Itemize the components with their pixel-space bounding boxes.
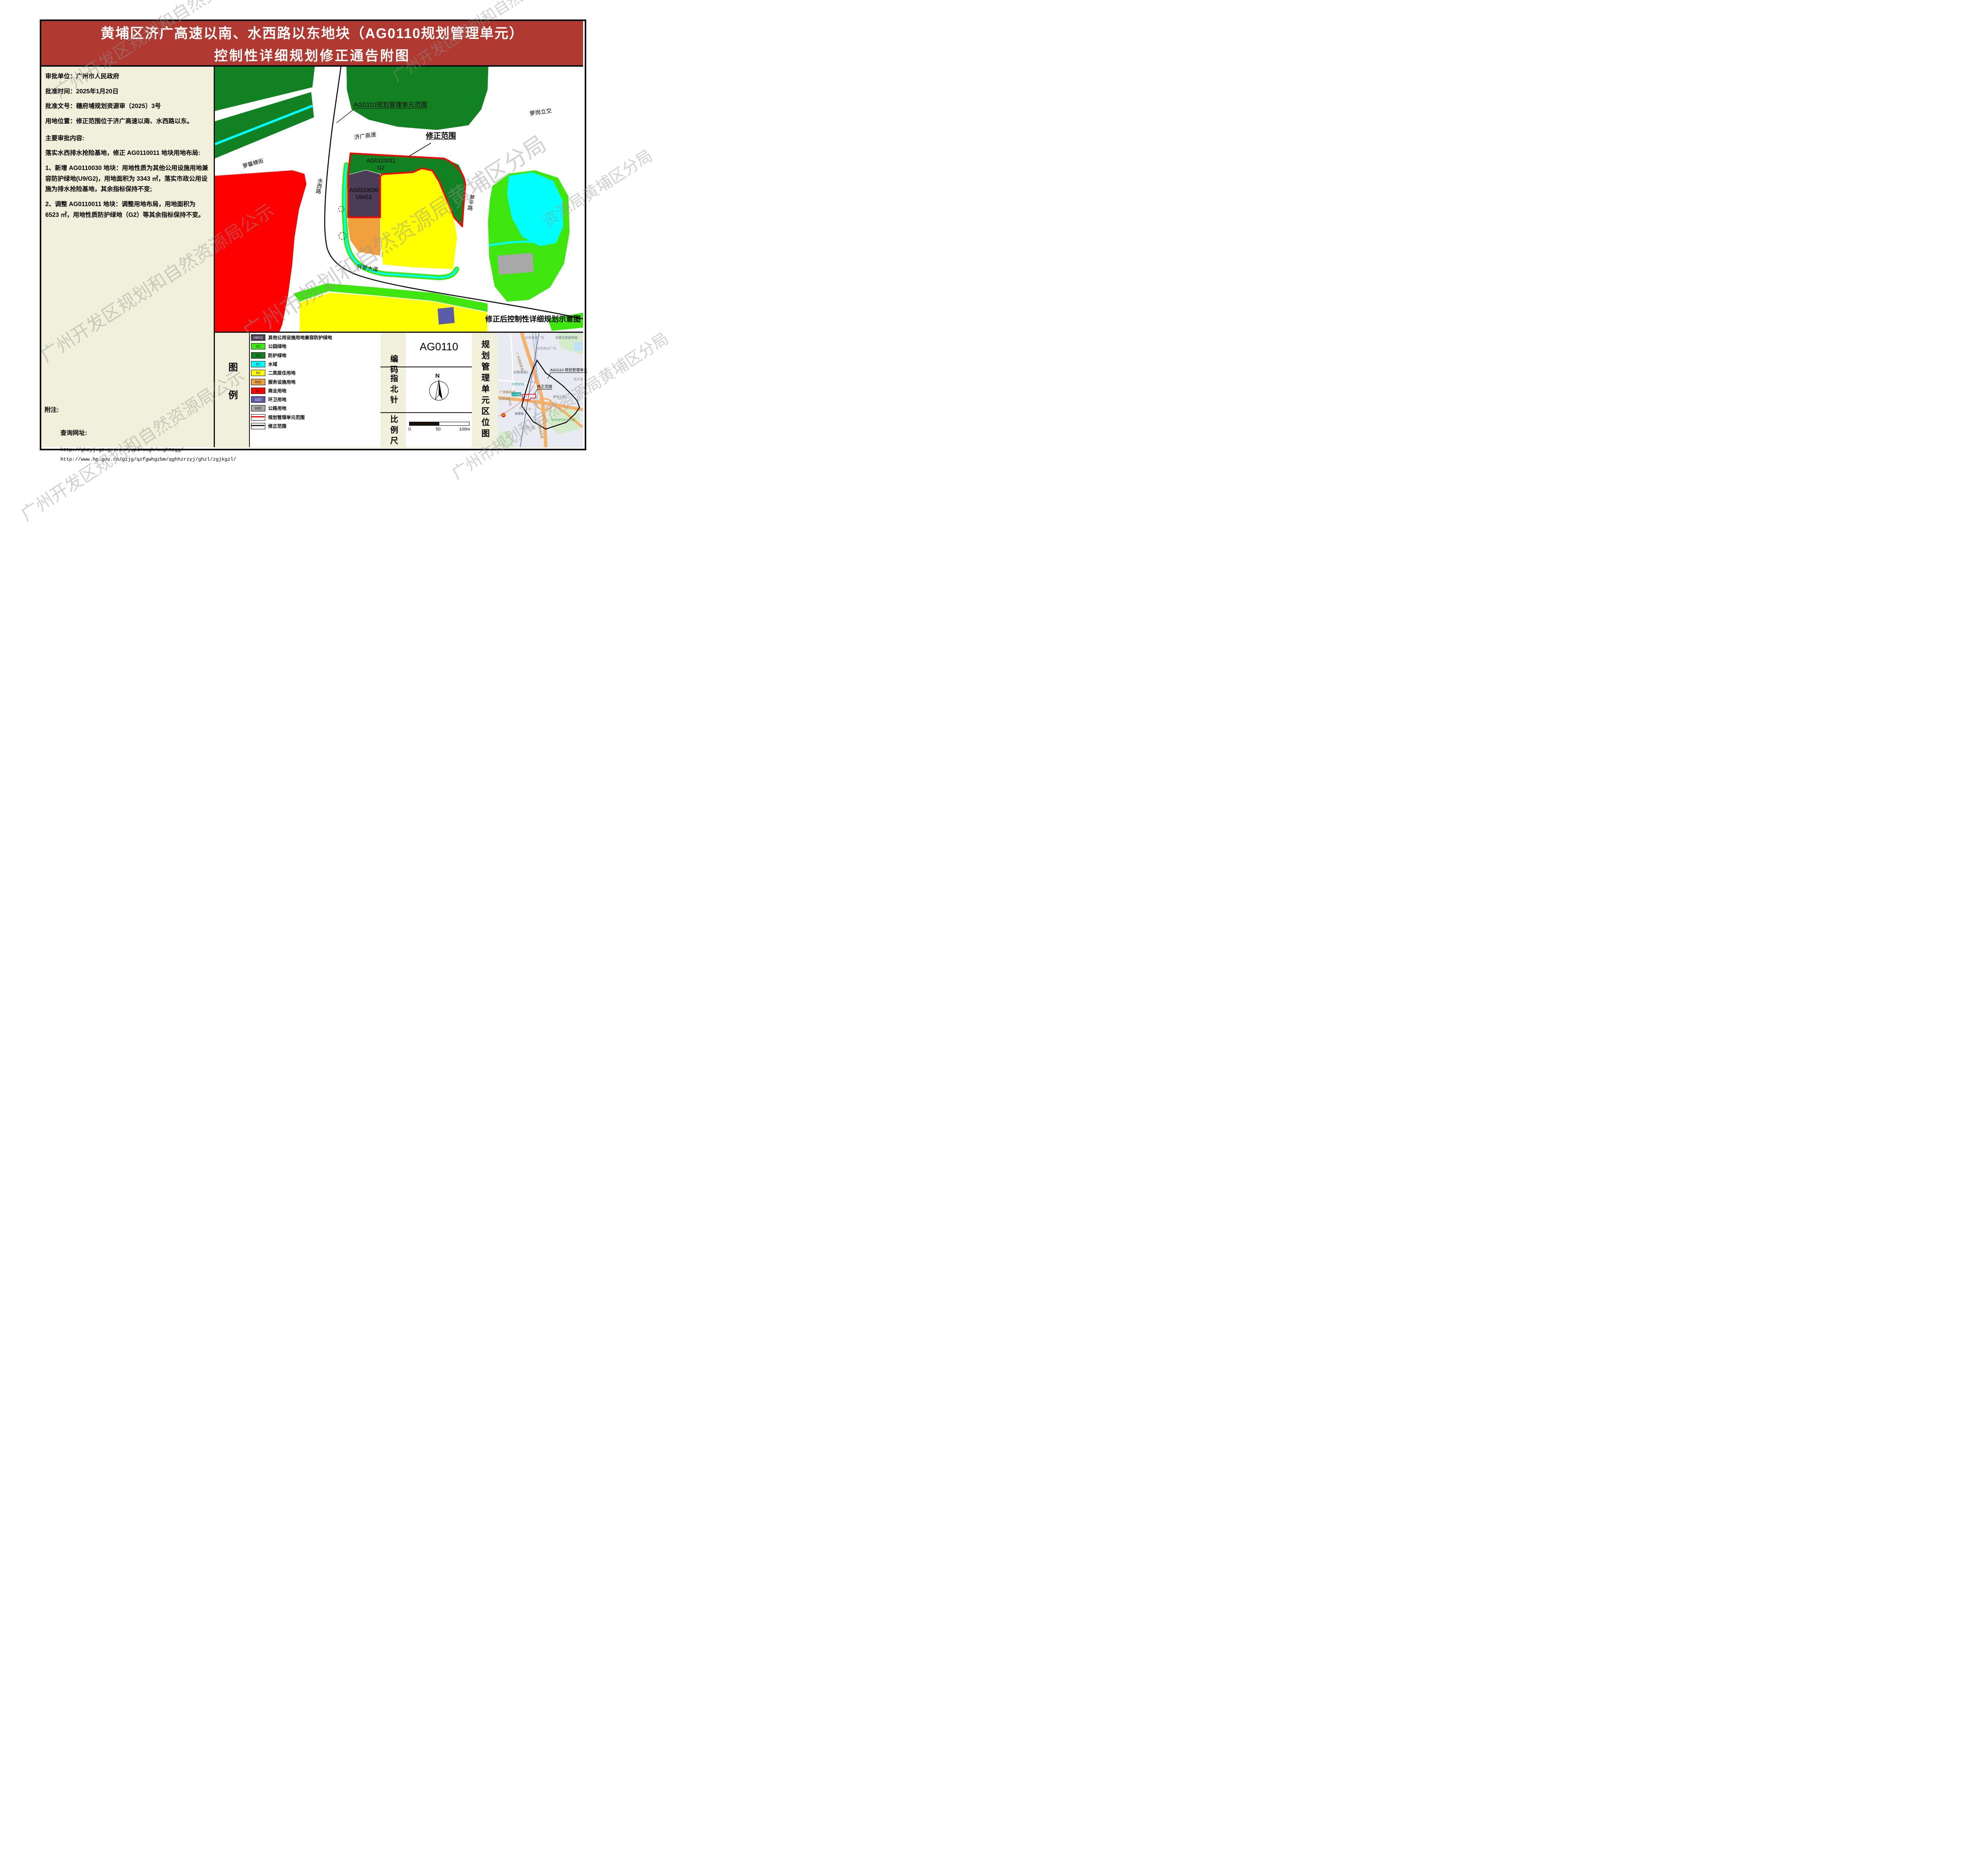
planning-notice-sheet: { "palette": { "title_band": "#B03A31", … (0, 0, 626, 469)
query-url-label: 查询网址: (60, 428, 211, 437)
approval-paragraph-7: 2、调整 AG0110011 地块：调整用地布局，用地面积为 6523 ㎡，用地… (45, 199, 211, 220)
inset-label-16: 峻泰路 (515, 411, 524, 416)
map-label-4: AG0110011 (355, 157, 407, 164)
approval-info-panel: 审批单位：广州市人民政府批准时间：2025年1月20日批准文号：穗府埔规划资源审… (41, 67, 215, 447)
legend-line-swatch (251, 425, 265, 426)
approval-paragraph-5: 落实水西排水抢险基地，修正 AG0110011 地块用地布局: (45, 148, 211, 159)
legend-item-8: H22公路用地 (250, 404, 381, 413)
legend-swatch: G1 (251, 343, 265, 349)
legend-label: 环卫用地 (268, 396, 286, 403)
legend-item-9: 规划管理单元范围 (250, 413, 381, 422)
legend-swatch (251, 423, 265, 429)
h22-highway-parcel (497, 253, 534, 275)
approval-paragraph-1: 批准时间：2025年1月20日 (45, 87, 211, 97)
title-line-1: 黄埔区济广高速以南、水西路以东地块（AG0110规划管理单元） (100, 22, 524, 42)
legend-item-2: G2防护绿地 (250, 351, 381, 360)
legend-swatch (251, 414, 265, 421)
legend-swatch: E1 (251, 361, 265, 367)
map-label-0: AG0110规划管理单元范围 (354, 99, 427, 109)
legend-label: 规划管理单元范围 (268, 414, 305, 421)
scale-bar (409, 422, 469, 426)
approval-paragraph-0: 审批单位：广州市人民政府 (45, 71, 211, 82)
inset-label-8: 珠华里 (574, 377, 583, 382)
map-label-5: G2 (355, 164, 407, 171)
location-map-title-column: 规划管理单元区位图 (472, 333, 498, 447)
legend-swatch: U22 (251, 396, 265, 403)
scale-tick-0: 0 (408, 427, 411, 432)
legend-label: 商业用地 (268, 388, 286, 394)
metro-line21-badge: 21号线 (512, 392, 521, 396)
query-url-1[interactable]: http://ghzyj.gz.gov.cn/ywpd/cxgh/cxghtzg… (60, 447, 211, 453)
scale-tick-2: 100m (459, 427, 470, 432)
notes-block: 附注: 查询网址: http://ghzyj.gz.gov.cn/ywpd/cx… (44, 405, 211, 462)
north-letter: N (435, 372, 440, 379)
map-label-3: 修正范围 (426, 130, 456, 141)
table-label-column: 编码 指北针 比例尺 (381, 333, 407, 447)
compass-needle-white (435, 380, 439, 400)
scale-tick-1: 50 (436, 427, 440, 432)
legend-title: 图例 (225, 362, 239, 418)
legend-line-swatch (251, 416, 265, 417)
inset-label-5: AG0110 规划管理单元 (550, 367, 587, 372)
inset-label-11: 萝岗立交 (553, 395, 566, 399)
legend-label: 其他公用设施用地兼容防护绿地 (268, 334, 332, 341)
approval-paragraph-4: 主要审批内容: (45, 133, 211, 144)
legend-title-column: 图例 (215, 333, 250, 447)
inset-label-7: X274 (530, 381, 536, 384)
compass-label: 指北针 (388, 374, 399, 406)
legend-label: 服务设施用地 (268, 379, 296, 385)
scale-label: 比例尺 (388, 415, 399, 447)
inset-label-9: 修正范围 (537, 384, 552, 389)
inset-label-17: 科城山庄 (523, 425, 535, 429)
legend-item-1: G1公园绿地 (250, 342, 381, 351)
notes-heading: 附注: (44, 405, 211, 414)
legend-label: 二类居住用地 (268, 370, 296, 376)
legend-panel: U9/G2其他公用设施用地兼容防护绿地G1公园绿地G2防护绿地E1水域R2二类居… (250, 333, 381, 447)
u22-sanitation-parcel (438, 307, 455, 324)
scale-bar-fill (410, 422, 439, 425)
inset-label-6: 水西学校 (512, 382, 524, 386)
legend-item-5: R22服务设施用地 (250, 378, 381, 386)
approval-paragraph-6: 1、新增 AG0110030 地块：用地性质为其他公用设施用地兼容防护绿地(U9… (45, 163, 211, 195)
table-divider-1 (381, 367, 472, 367)
legend-item-6: B1商业用地 (250, 386, 381, 395)
legend-item-4: R2二类居住用地 (250, 369, 381, 377)
map-label-12: 修正后控制性详细规划示意图 (457, 314, 581, 324)
legend-swatch: R2 (251, 370, 265, 376)
inset-label-0: 水西敏捷广场 (525, 336, 544, 340)
legend-label: 水域 (268, 361, 277, 367)
inset-label-4: 水西(有轨) (513, 370, 528, 374)
legend-label: 公路用地 (268, 405, 286, 411)
map-label-6: AG0110030 (340, 187, 388, 193)
legend-item-7: U22环卫用地 (250, 395, 381, 404)
map-label-7: U9/G2 (340, 194, 388, 200)
legend-label: 公园绿地 (268, 343, 286, 349)
legend-swatch: B1 (251, 388, 265, 394)
legend-label: 防护绿地 (268, 352, 286, 359)
location-map-title: 规划管理单元区位图 (479, 340, 491, 440)
query-url-2[interactable]: http://www.hp.gov.cn/gzjg/qzfgwhgzbm/qgh… (60, 457, 211, 462)
legend-label: 修正范围 (268, 423, 286, 429)
table-divider-2 (381, 412, 472, 413)
legend-swatch: H22 (251, 405, 265, 411)
unit-code-value: AG0110 (406, 341, 472, 353)
legend-swatch: G2 (251, 352, 265, 359)
legend-swatch: U9/G2 (251, 334, 265, 341)
legend-item-10: 修正范围 (250, 422, 381, 430)
approval-paragraph-2: 批准文号：穗府埔规划资源审〔2025〕3号 (45, 101, 211, 112)
title-line-2: 控制性详细规划修正通告附图 (214, 45, 410, 64)
inset-label-2: 水西商业广场 (537, 346, 556, 351)
inset-label-18: 长岭现代农业公园 (551, 418, 578, 422)
legend-item-0: U9/G2其他公用设施用地兼容防护绿地 (250, 333, 381, 342)
code-label: 编码 (388, 355, 399, 376)
title-banner: 黄埔区济广高速以南、水西路以东地块（AG0110规划管理单元） 控制性详细规划修… (41, 21, 583, 67)
compass-needle-black (439, 380, 442, 400)
mcdonalds-icon: M (501, 413, 506, 417)
legend-item-3: E1水域 (250, 360, 381, 369)
inset-label-1: 北师大实验学校 (555, 336, 578, 340)
legend-swatch: R22 (251, 379, 265, 385)
approval-paragraphs: 审批单位：广州市人民政府批准时间：2025年1月20日批准文号：穗府埔规划资源审… (45, 71, 211, 225)
approval-paragraph-3: 用地位置：修正范围位于济广高速以南、水西路以东。 (45, 116, 211, 127)
inset-pond (574, 342, 583, 351)
